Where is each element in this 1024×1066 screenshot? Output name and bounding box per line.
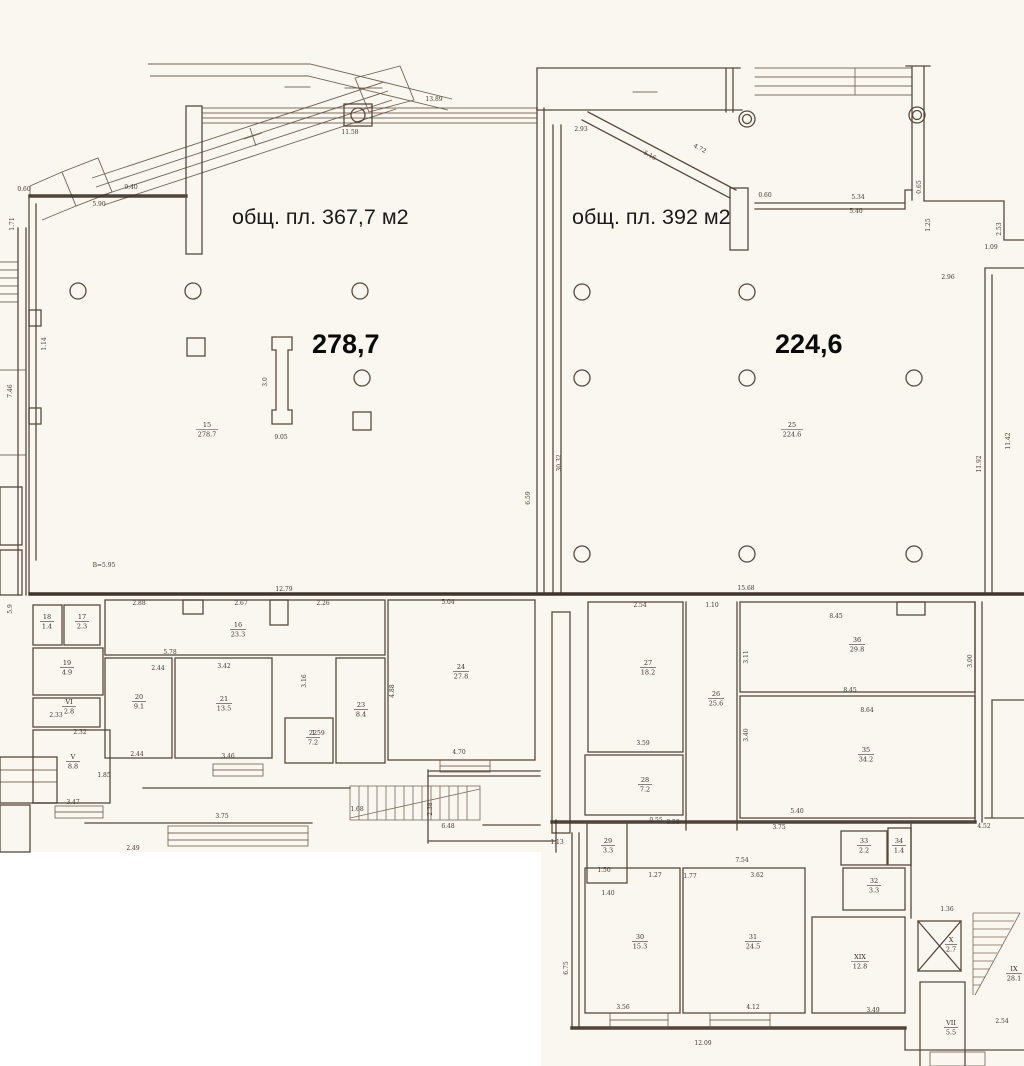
svg-text:27.8: 27.8 — [454, 673, 468, 681]
svg-text:1.77: 1.77 — [683, 873, 697, 880]
svg-text:2.49: 2.49 — [126, 845, 140, 852]
svg-text:5.5: 5.5 — [946, 1029, 956, 1037]
svg-text:24: 24 — [457, 663, 465, 671]
svg-text:3.75: 3.75 — [772, 824, 786, 831]
svg-text:29.8: 29.8 — [850, 646, 864, 654]
svg-text:2.2: 2.2 — [859, 847, 869, 855]
svg-text:5.90: 5.90 — [92, 201, 106, 208]
svg-text:9.05: 9.05 — [274, 434, 288, 441]
svg-text:5.04: 5.04 — [441, 599, 455, 606]
svg-text:8.4: 8.4 — [356, 711, 366, 719]
svg-text:12.79: 12.79 — [275, 586, 292, 593]
svg-text:20: 20 — [135, 693, 143, 701]
svg-text:25: 25 — [788, 421, 796, 429]
svg-text:36: 36 — [853, 636, 861, 644]
svg-text:33: 33 — [860, 837, 868, 845]
svg-text:15.3: 15.3 — [633, 943, 647, 951]
svg-text:3.62: 3.62 — [750, 872, 764, 879]
svg-text:3.0: 3.0 — [262, 377, 269, 387]
svg-text:2.44: 2.44 — [130, 751, 144, 758]
svg-text:3.00: 3.00 — [967, 654, 974, 668]
svg-text:11.42: 11.42 — [1005, 432, 1012, 449]
svg-text:5.78: 5.78 — [163, 649, 177, 656]
left-hall-area-number: 278,7 — [312, 329, 380, 359]
svg-text:1.71: 1.71 — [9, 217, 16, 230]
svg-text:2.93: 2.93 — [574, 126, 588, 133]
svg-text:35: 35 — [862, 746, 870, 754]
svg-text:X: X — [949, 936, 954, 944]
svg-text:23.3: 23.3 — [231, 631, 245, 639]
svg-text:7.2: 7.2 — [640, 786, 650, 794]
svg-text:15: 15 — [203, 421, 211, 429]
svg-text:18.2: 18.2 — [641, 669, 655, 677]
svg-text:2.88: 2.88 — [132, 600, 146, 607]
svg-text:11.92: 11.92 — [976, 455, 983, 472]
svg-text:VII: VII — [945, 1019, 956, 1027]
svg-text:1.4: 1.4 — [894, 847, 904, 855]
svg-text:4.70: 4.70 — [452, 749, 466, 756]
svg-text:26: 26 — [712, 690, 720, 698]
svg-text:30: 30 — [636, 933, 644, 941]
right-hall-caption: общ. пл. 392 м2 — [572, 205, 731, 229]
svg-text:224.6: 224.6 — [783, 431, 802, 439]
svg-text:3.47: 3.47 — [66, 799, 80, 806]
svg-text:1.27: 1.27 — [648, 872, 662, 879]
svg-text:3.16: 3.16 — [301, 674, 308, 688]
svg-text:5.9: 5.9 — [7, 604, 14, 614]
svg-text:5.34: 5.34 — [851, 194, 865, 201]
svg-text:V: V — [70, 753, 76, 761]
svg-text:1.85: 1.85 — [97, 772, 111, 779]
svg-text:5.40: 5.40 — [790, 808, 804, 815]
svg-text:11.58: 11.58 — [341, 129, 358, 136]
svg-text:1.68: 1.68 — [350, 806, 364, 813]
floor-plan-page: общ. пл. 367,7 м2 общ. пл. 392 м2 278,7 … — [0, 0, 1024, 1066]
svg-text:6.48: 6.48 — [441, 823, 455, 830]
left-hall-caption: общ. пл. 367,7 м2 — [232, 205, 409, 229]
svg-text:3.49: 3.49 — [866, 1007, 880, 1014]
svg-text:2.53: 2.53 — [996, 222, 1003, 236]
svg-text:29: 29 — [604, 837, 612, 845]
svg-text:XIX: XIX — [854, 953, 866, 961]
svg-text:8.64: 8.64 — [860, 707, 874, 714]
svg-text:2.96: 2.96 — [941, 274, 955, 281]
floor-plan-canvas: общ. пл. 367,7 м2 общ. пл. 392 м2 278,7 … — [0, 0, 1024, 1066]
svg-text:7.46: 7.46 — [7, 384, 14, 398]
svg-text:2.38: 2.38 — [427, 802, 434, 816]
svg-text:5.40: 5.40 — [849, 208, 863, 215]
room-label: VII5.5 — [944, 1019, 958, 1037]
svg-text:4.9: 4.9 — [62, 669, 72, 677]
svg-text:0.60: 0.60 — [758, 192, 772, 199]
svg-text:1.50: 1.50 — [597, 867, 611, 874]
right-hall-area-number: 224,6 — [775, 329, 843, 359]
svg-text:8.45: 8.45 — [843, 687, 857, 694]
svg-text:19: 19 — [63, 659, 71, 667]
svg-text:31: 31 — [749, 933, 757, 941]
svg-text:2.44: 2.44 — [151, 665, 165, 672]
svg-text:3.3: 3.3 — [603, 847, 613, 855]
svg-text:3.58: 3.58 — [666, 819, 680, 826]
svg-text:4.12: 4.12 — [746, 1004, 760, 1011]
svg-text:2.7: 2.7 — [946, 946, 956, 954]
svg-text:0.65: 0.65 — [916, 180, 923, 194]
svg-text:1.36: 1.36 — [940, 906, 954, 913]
svg-text:1.14: 1.14 — [41, 337, 48, 351]
svg-text:3.42: 3.42 — [217, 663, 231, 670]
svg-text:9.40: 9.40 — [124, 184, 138, 191]
svg-text:3.11: 3.11 — [743, 650, 750, 663]
svg-text:1.13: 1.13 — [550, 839, 564, 846]
svg-text:3.40: 3.40 — [743, 728, 750, 742]
svg-text:1.09: 1.09 — [984, 244, 998, 251]
svg-text:7.54: 7.54 — [735, 857, 749, 864]
svg-text:1.59: 1.59 — [311, 730, 325, 737]
svg-text:1.25: 1.25 — [925, 218, 932, 232]
svg-text:8.8: 8.8 — [68, 763, 78, 771]
svg-text:12.09: 12.09 — [694, 1040, 711, 1047]
svg-text:3.56: 3.56 — [616, 1004, 630, 1011]
svg-text:6.59: 6.59 — [525, 491, 532, 505]
svg-text:7.2: 7.2 — [308, 739, 318, 747]
svg-text:24.5: 24.5 — [746, 943, 760, 951]
svg-text:34: 34 — [895, 837, 903, 845]
svg-text:2.67: 2.67 — [234, 600, 248, 607]
svg-text:2.54: 2.54 — [633, 602, 647, 609]
svg-text:3.46: 3.46 — [221, 753, 235, 760]
svg-text:15.68: 15.68 — [737, 585, 754, 592]
svg-text:8.45: 8.45 — [829, 613, 843, 620]
svg-text:21: 21 — [220, 695, 228, 703]
svg-text:1.40: 1.40 — [601, 890, 615, 897]
svg-text:2.26: 2.26 — [316, 600, 330, 607]
svg-text:4.52: 4.52 — [977, 823, 991, 830]
svg-text:28: 28 — [641, 776, 649, 784]
svg-text:32: 32 — [870, 877, 878, 885]
svg-text:278.7: 278.7 — [198, 431, 217, 439]
svg-text:В=5.95: В=5.95 — [93, 562, 116, 569]
svg-text:3.75: 3.75 — [215, 813, 229, 820]
svg-text:2.3: 2.3 — [77, 623, 87, 631]
svg-text:3.59: 3.59 — [636, 740, 650, 747]
svg-text:27: 27 — [644, 659, 652, 667]
svg-text:17: 17 — [78, 613, 86, 621]
svg-text:6.75: 6.75 — [563, 961, 570, 975]
svg-text:3.3: 3.3 — [869, 887, 879, 895]
svg-text:2.32: 2.32 — [73, 729, 87, 736]
svg-text:9.1: 9.1 — [134, 703, 144, 711]
svg-text:0.55: 0.55 — [649, 817, 663, 824]
svg-text:1.10: 1.10 — [705, 602, 719, 609]
svg-text:2.33: 2.33 — [49, 712, 63, 719]
svg-text:25.6: 25.6 — [709, 700, 723, 708]
svg-text:VI: VI — [64, 698, 73, 706]
svg-text:28.1: 28.1 — [1007, 975, 1021, 983]
svg-text:13.5: 13.5 — [217, 705, 231, 713]
svg-text:4.88: 4.88 — [389, 684, 396, 698]
svg-text:23: 23 — [357, 701, 365, 709]
svg-text:2.8: 2.8 — [64, 708, 74, 716]
svg-text:2.54: 2.54 — [995, 1018, 1009, 1025]
svg-text:34.2: 34.2 — [859, 756, 873, 764]
svg-text:1.4: 1.4 — [42, 623, 52, 631]
svg-text:0.60: 0.60 — [17, 186, 31, 193]
svg-text:18: 18 — [43, 613, 51, 621]
svg-text:13.89: 13.89 — [425, 96, 442, 103]
svg-text:30.32: 30.32 — [556, 454, 563, 471]
svg-text:16: 16 — [234, 621, 242, 629]
svg-text:IX: IX — [1010, 965, 1018, 973]
scan-cut-area — [0, 852, 541, 1066]
svg-text:12.8: 12.8 — [853, 963, 867, 971]
